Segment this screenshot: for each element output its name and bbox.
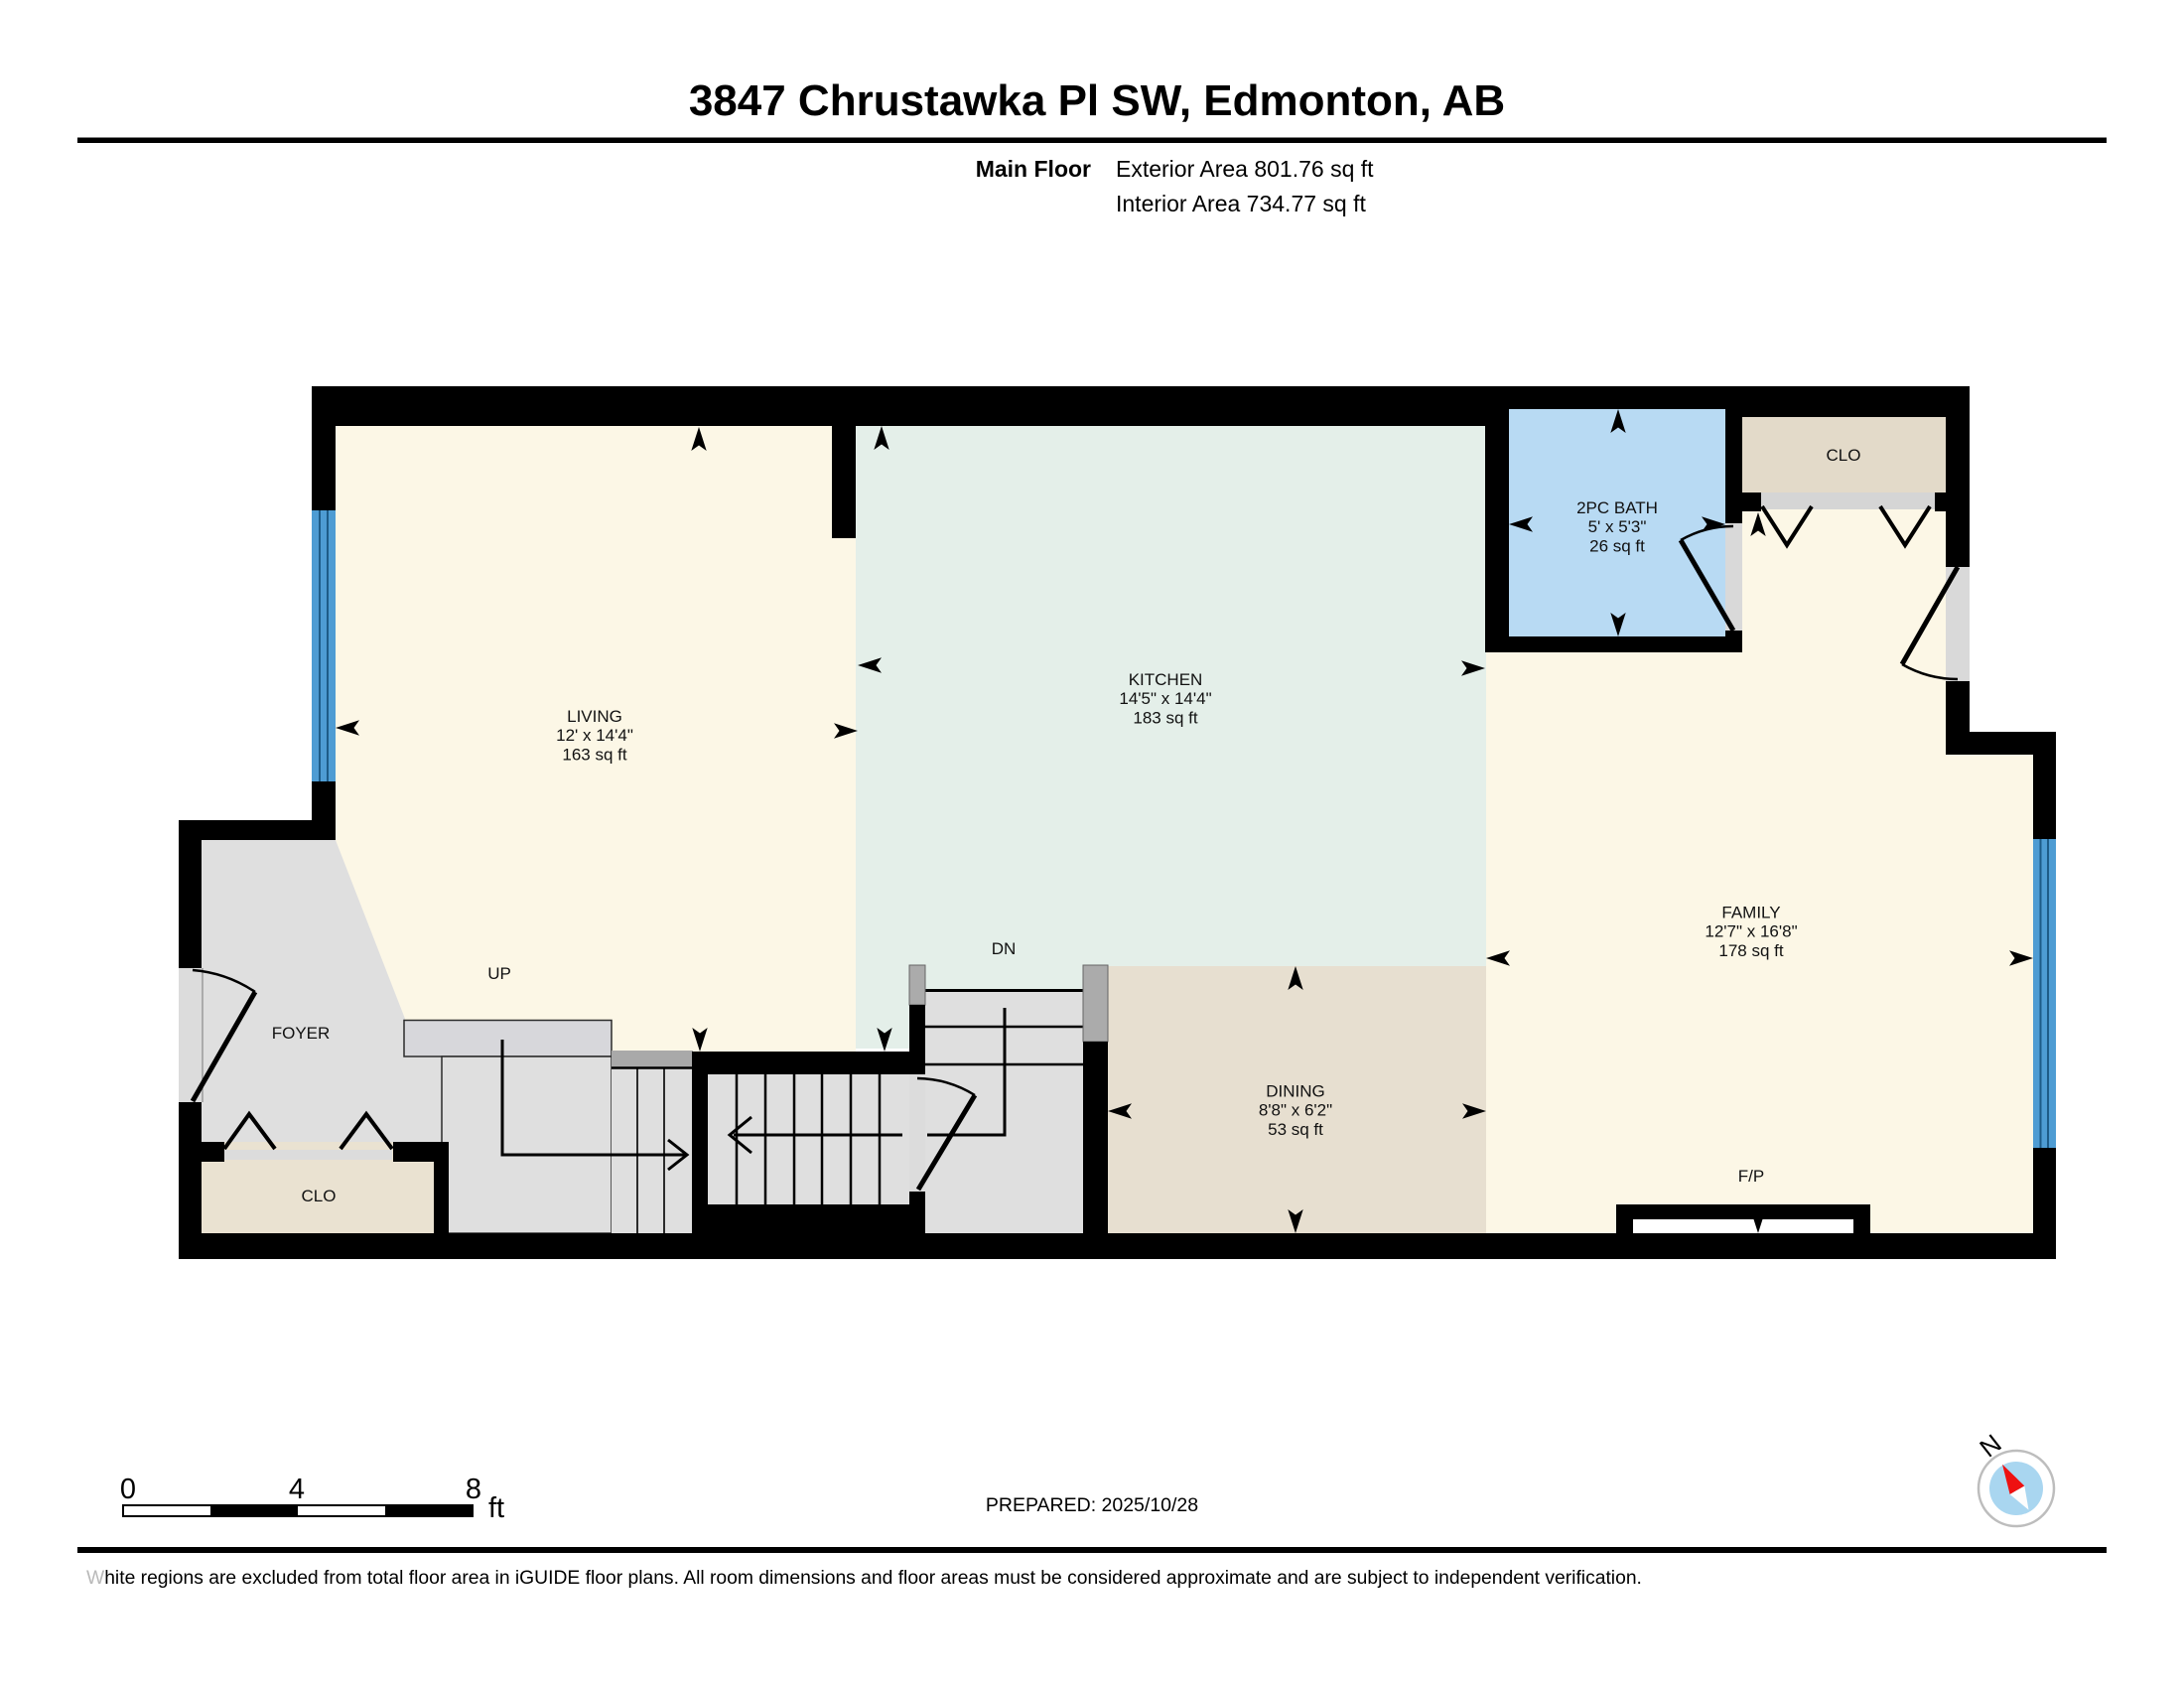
svg-text:F/P: F/P bbox=[1738, 1167, 1764, 1186]
svg-text:8: 8 bbox=[466, 1474, 481, 1505]
svg-text:DN: DN bbox=[992, 939, 1017, 958]
svg-text:12' x 14'4": 12' x 14'4" bbox=[556, 726, 633, 745]
svg-text:Main Floor: Main Floor bbox=[976, 156, 1091, 182]
svg-text:3847 Chrustawka Pl SW, Edmonto: 3847 Chrustawka Pl SW, Edmonton, AB bbox=[689, 76, 1505, 125]
svg-text:LIVING: LIVING bbox=[567, 707, 622, 726]
svg-text:DINING: DINING bbox=[1266, 1082, 1325, 1101]
svg-text:178 sq ft: 178 sq ft bbox=[1718, 941, 1783, 960]
svg-text:0: 0 bbox=[120, 1474, 136, 1505]
svg-text:ft: ft bbox=[488, 1492, 504, 1524]
svg-text:CLO: CLO bbox=[1827, 446, 1861, 465]
svg-text:2PC BATH: 2PC BATH bbox=[1576, 498, 1658, 517]
svg-text:8'8" x 6'2": 8'8" x 6'2" bbox=[1259, 1101, 1332, 1120]
svg-text:14'5" x 14'4": 14'5" x 14'4" bbox=[1119, 689, 1211, 708]
svg-text:4: 4 bbox=[289, 1474, 305, 1505]
svg-text:Exterior Area 801.76 sq ft: Exterior Area 801.76 sq ft bbox=[1116, 156, 1374, 182]
svg-text:Interior Area 734.77 sq ft: Interior Area 734.77 sq ft bbox=[1116, 191, 1366, 216]
svg-text:FAMILY: FAMILY bbox=[1721, 904, 1780, 922]
svg-text:PREPARED: 2025/10/28: PREPARED: 2025/10/28 bbox=[986, 1494, 1198, 1516]
svg-text:183 sq ft: 183 sq ft bbox=[1133, 708, 1197, 727]
svg-text:12'7" x 16'8": 12'7" x 16'8" bbox=[1705, 922, 1797, 941]
svg-text:CLO: CLO bbox=[302, 1187, 337, 1205]
svg-text:163 sq ft: 163 sq ft bbox=[562, 745, 626, 764]
svg-text:26 sq ft: 26 sq ft bbox=[1589, 536, 1645, 555]
svg-text:White regions are excluded fro: White regions are excluded from total fl… bbox=[86, 1568, 1642, 1589]
svg-text:FOYER: FOYER bbox=[272, 1024, 331, 1043]
svg-text:KITCHEN: KITCHEN bbox=[1129, 670, 1203, 689]
svg-text:5' x 5'3": 5' x 5'3" bbox=[1588, 517, 1647, 536]
svg-text:53 sq ft: 53 sq ft bbox=[1268, 1120, 1323, 1139]
svg-text:UP: UP bbox=[487, 964, 511, 983]
